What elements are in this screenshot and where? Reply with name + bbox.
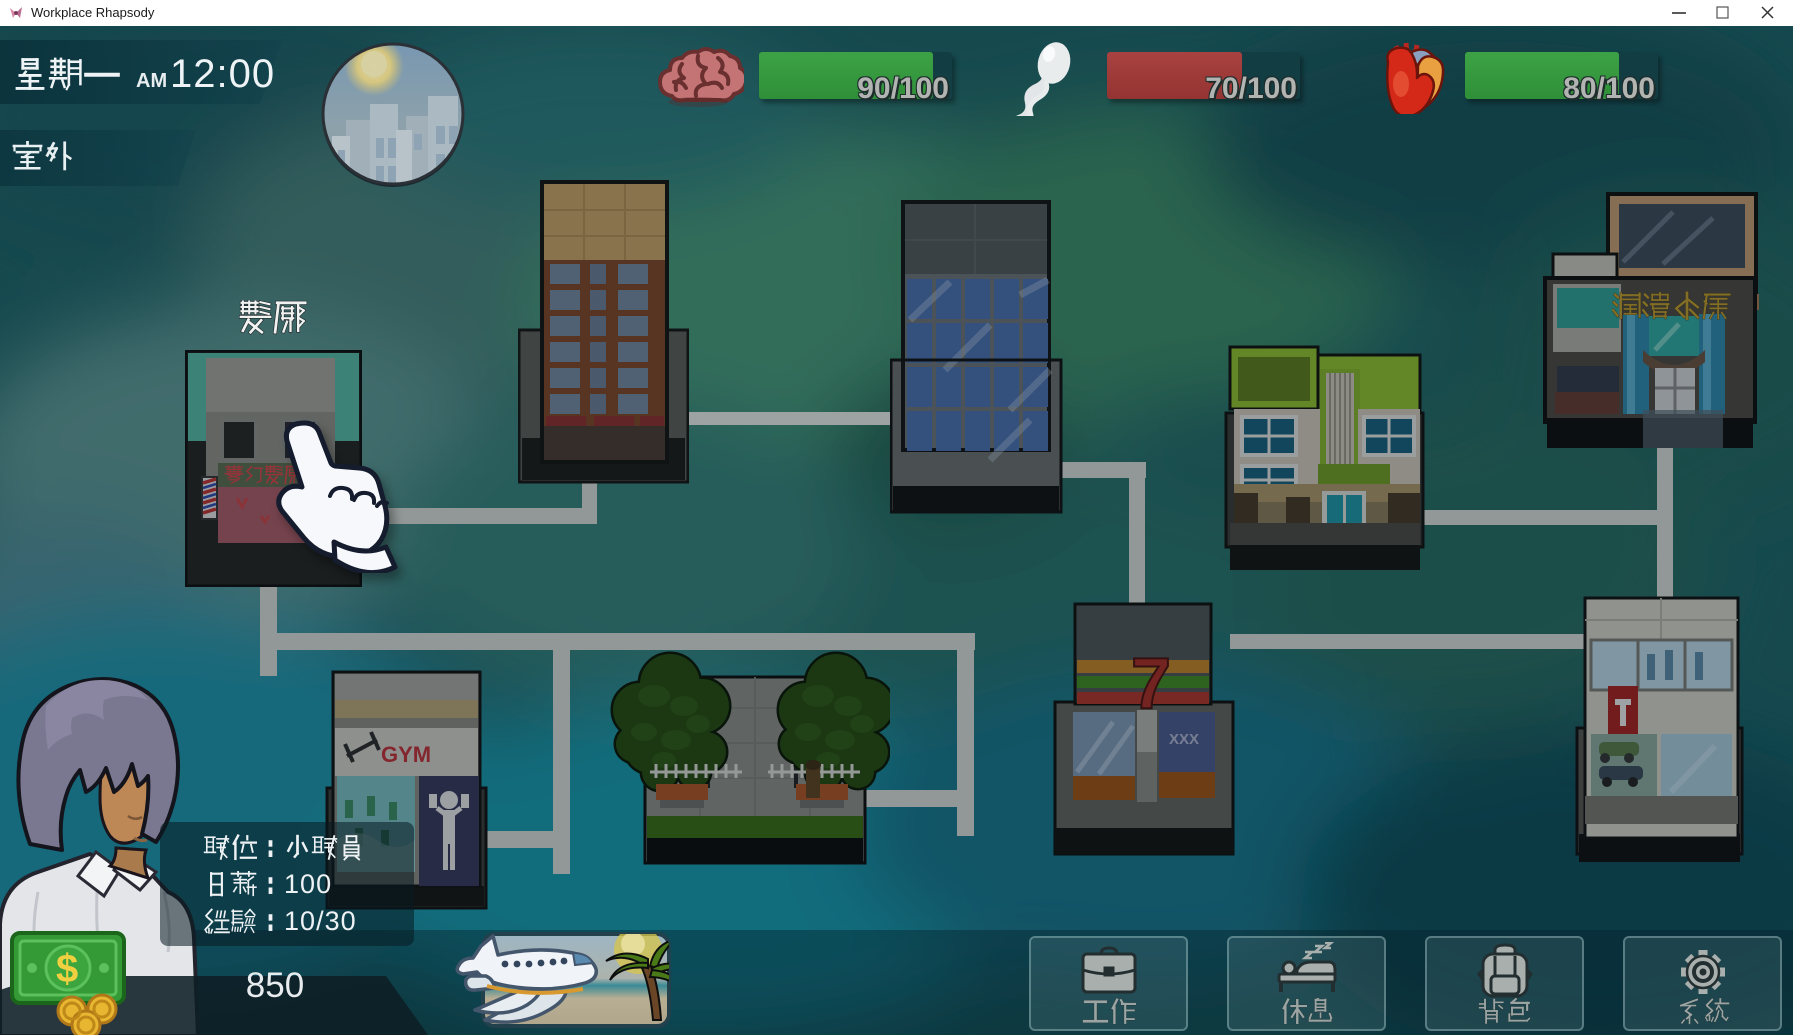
svg-text:$: $ (56, 947, 78, 991)
